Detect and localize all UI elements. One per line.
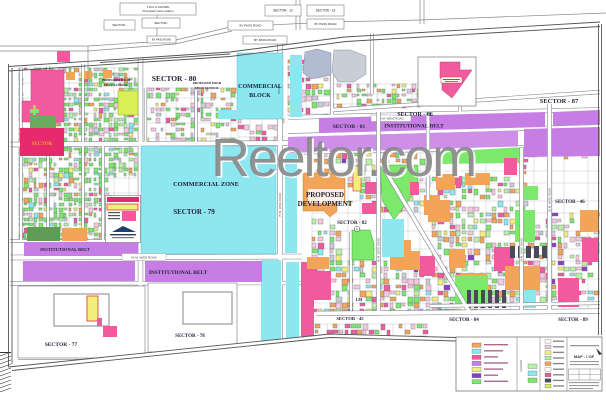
svg-text:SECTOR - 78: SECTOR - 78 bbox=[175, 334, 205, 339]
svg-text:SECTOR - 46: SECTOR - 46 bbox=[555, 200, 585, 205]
svg-text:SECTOR - 86: SECTOR - 86 bbox=[397, 112, 433, 118]
svg-text:SECTOR - 12: SECTOR - 12 bbox=[273, 9, 293, 13]
svg-text:BY PASS ROAD: BY PASS ROAD bbox=[254, 38, 277, 42]
svg-text:SECTOR - 84: SECTOR - 84 bbox=[449, 318, 479, 323]
svg-text:BLOCK: BLOCK bbox=[249, 93, 271, 99]
svg-text:SECTOR - 45: SECTOR - 45 bbox=[336, 316, 364, 321]
svg-text:SECTOR - 79: SECTOR - 79 bbox=[173, 208, 215, 216]
svg-text:Reeltor.com: Reeltor.com bbox=[211, 128, 475, 188]
svg-text:DEVELOPMENT: DEVELOPMENT bbox=[298, 200, 353, 208]
svg-text:COMMERCIAL: COMMERCIAL bbox=[238, 84, 282, 90]
svg-text:24 M. WIDE ROAD: 24 M. WIDE ROAD bbox=[520, 238, 524, 262]
svg-text:BY PASS ROAD: BY PASS ROAD bbox=[314, 22, 337, 26]
svg-text:LEGEND: LEGEND bbox=[519, 359, 523, 372]
svg-text:PROPOSED HIGH: PROPOSED HIGH bbox=[102, 78, 131, 82]
svg-text:SECTOR-: SECTOR- bbox=[154, 21, 167, 25]
svg-text:SECTOR - 87: SECTOR - 87 bbox=[540, 98, 579, 105]
svg-text:MAP - I OF: MAP - I OF bbox=[574, 354, 595, 359]
svg-text:TECT SCHOOL: TECT SCHOOL bbox=[104, 83, 129, 87]
svg-text:LM: LM bbox=[356, 297, 363, 302]
svg-text:PROPOSED: PROPOSED bbox=[306, 191, 344, 199]
svg-text:INSTITUTIONAL BELT: INSTITUTIONAL BELT bbox=[149, 270, 208, 276]
svg-text:INSTITUTIONAL BELT: INSTITUTIONAL BELT bbox=[40, 247, 90, 252]
svg-text:PROPOSED HIGH: PROPOSED HIGH bbox=[193, 81, 222, 85]
svg-text:BY PASS ROAD: BY PASS ROAD bbox=[152, 37, 171, 41]
svg-text:SECTOR - 89: SECTOR - 89 bbox=[558, 318, 588, 323]
svg-text:SECTOR - 82: SECTOR - 82 bbox=[337, 221, 367, 226]
svg-text:SECTOR - 77: SECTOR - 77 bbox=[45, 342, 78, 348]
svg-text:SECTOR - 13: SECTOR - 13 bbox=[316, 9, 336, 13]
svg-text:TECT SCHOOL: TECT SCHOOL bbox=[195, 86, 220, 90]
svg-text:Proposed metro station: Proposed metro station bbox=[142, 9, 173, 13]
svg-text:75 M. WIDE ROAD: 75 M. WIDE ROAD bbox=[278, 193, 282, 217]
svg-text:BY PASS ROAD: BY PASS ROAD bbox=[239, 24, 262, 28]
svg-text:SECTOR: SECTOR bbox=[32, 142, 53, 147]
svg-text:SECTOR -: SECTOR - bbox=[112, 23, 126, 27]
svg-text:60 M. WIDE ROAD: 60 M. WIDE ROAD bbox=[377, 238, 381, 262]
svg-text:60 M. WIDE ROAD: 60 M. WIDE ROAD bbox=[548, 188, 552, 212]
svg-text:SECTOR - 80: SECTOR - 80 bbox=[152, 74, 197, 83]
svg-text:60 M. WIDE ROAD: 60 M. WIDE ROAD bbox=[131, 255, 158, 259]
